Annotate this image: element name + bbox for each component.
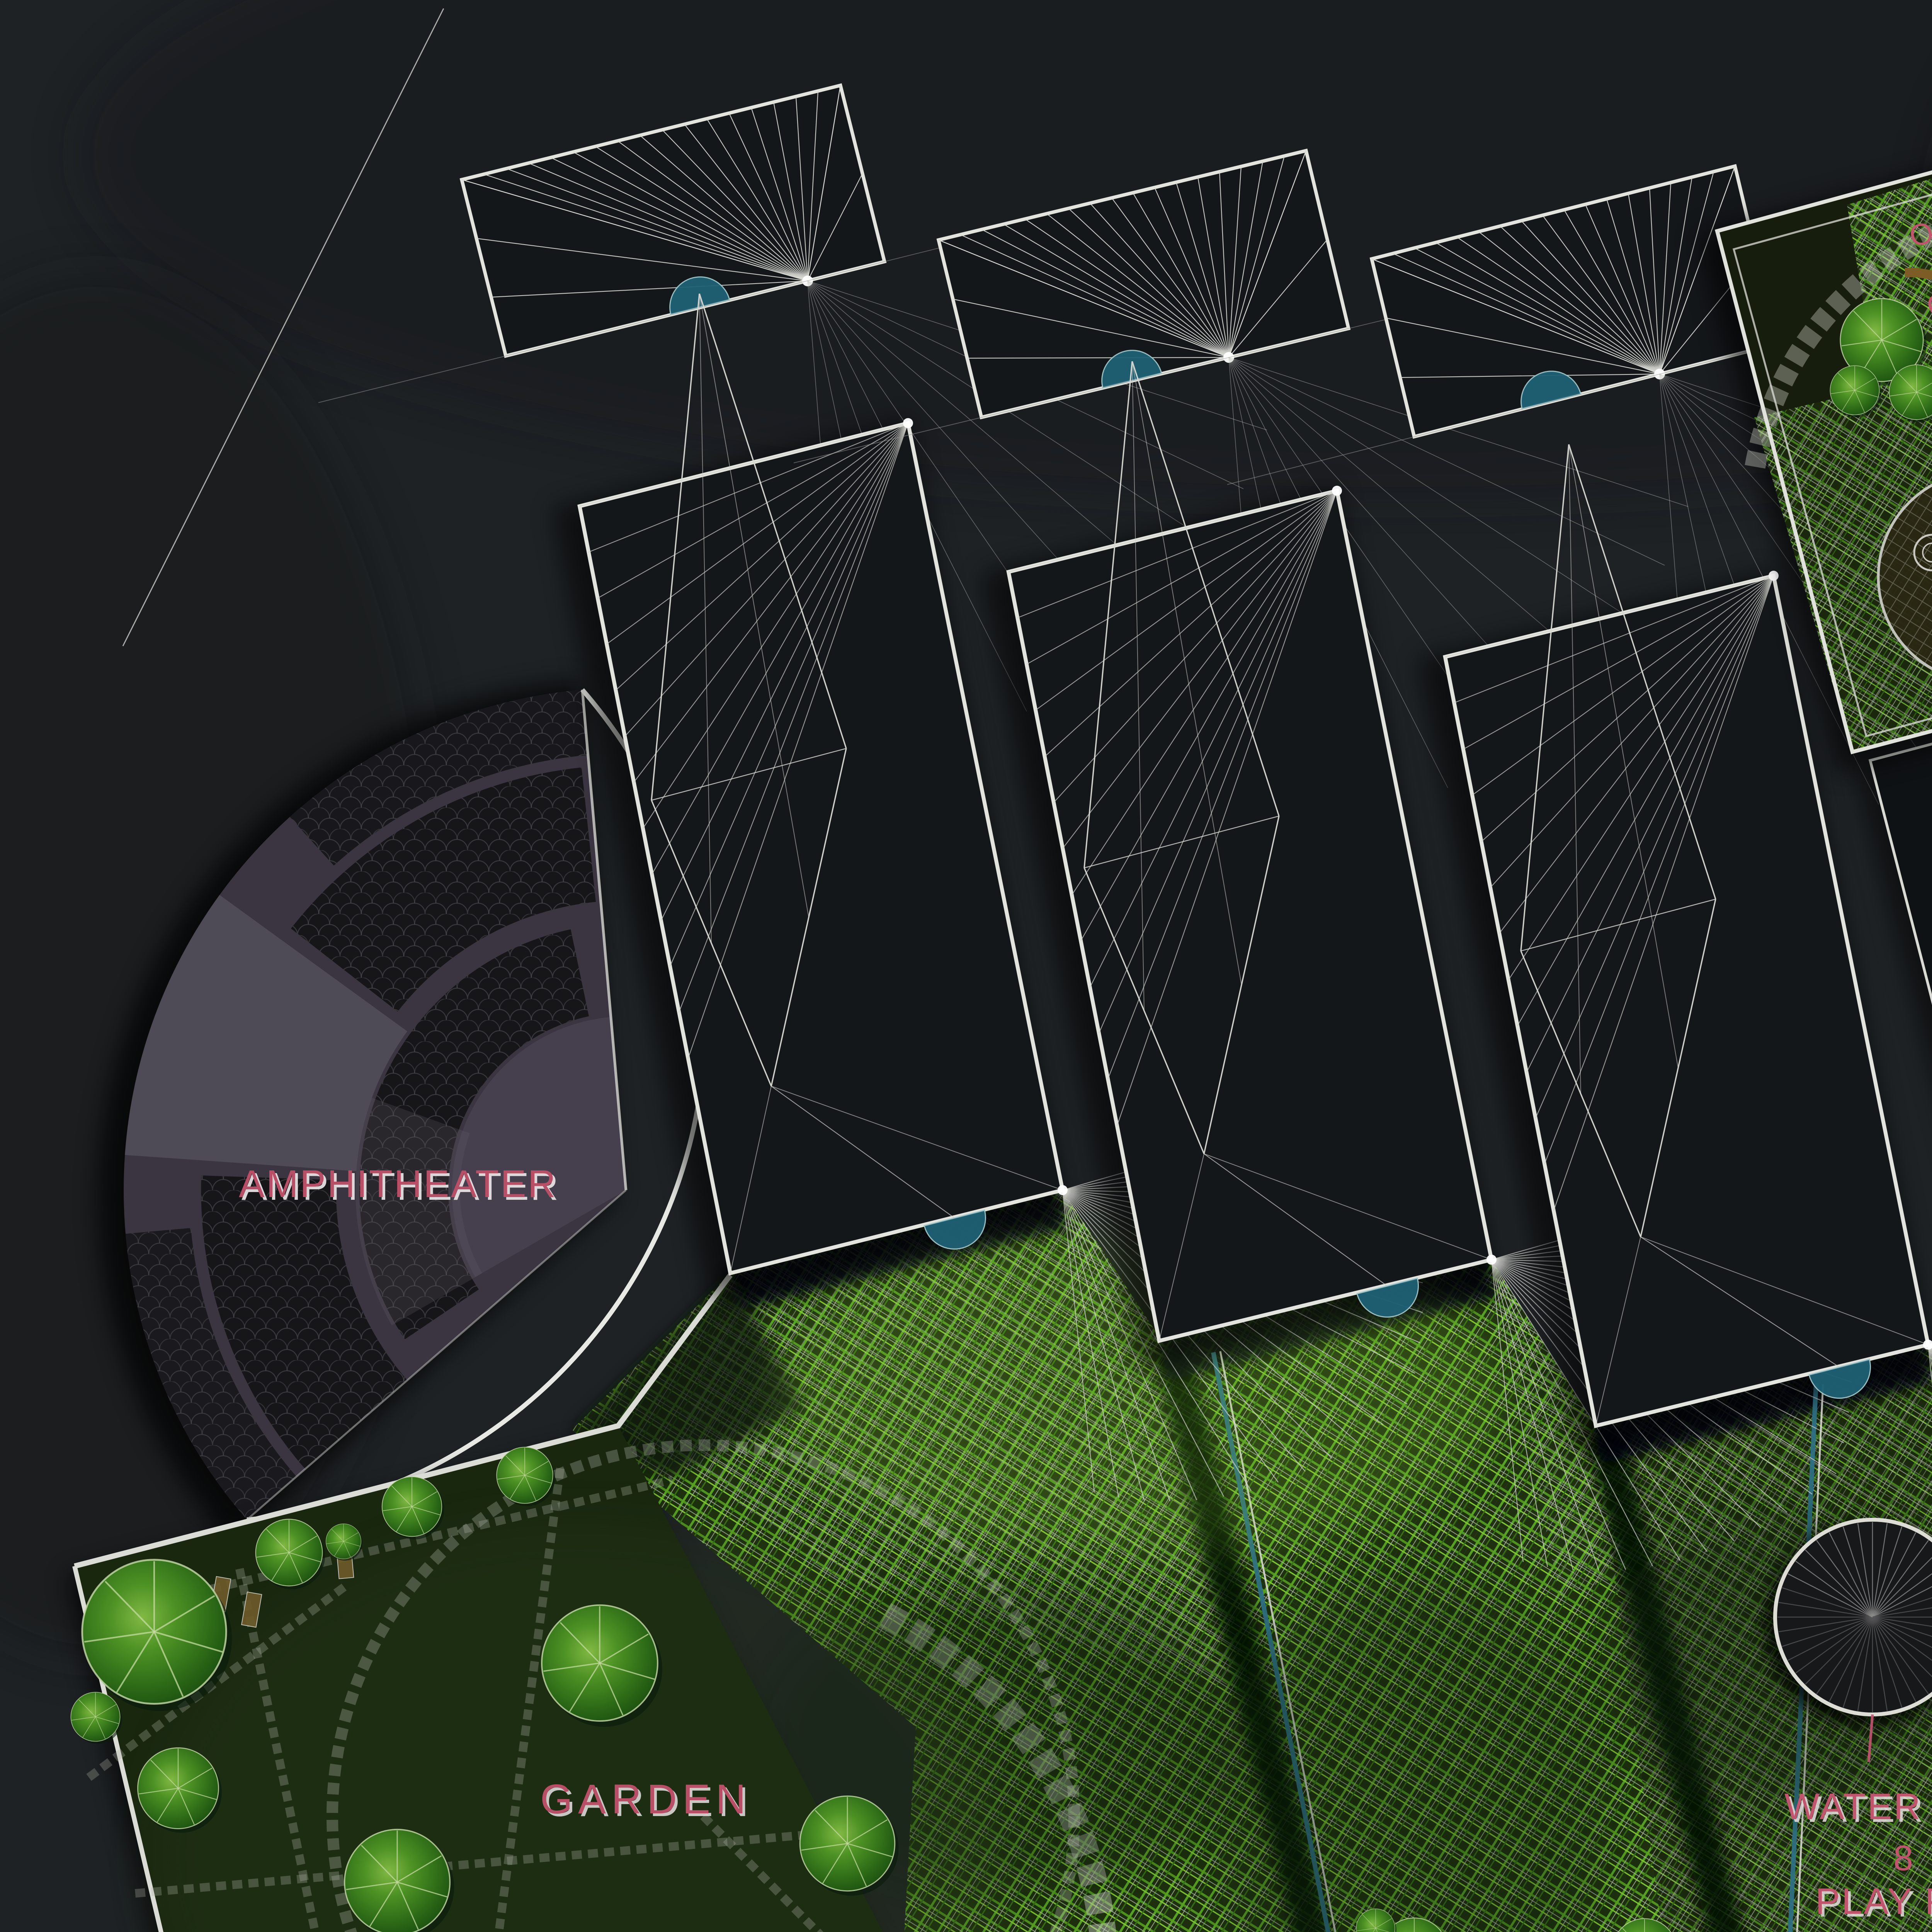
svg-text:AMPHITHEATER: AMPHITHEATER <box>239 1162 557 1206</box>
svg-text:WATER TOWER: WATER TOWER <box>1784 1786 1932 1827</box>
svg-text:GARDEN: GARDEN <box>540 1776 751 1822</box>
svg-text:8: 8 <box>1893 1838 1913 1878</box>
svg-text:PLAY PUMP: PLAY PUMP <box>1815 1881 1932 1922</box>
